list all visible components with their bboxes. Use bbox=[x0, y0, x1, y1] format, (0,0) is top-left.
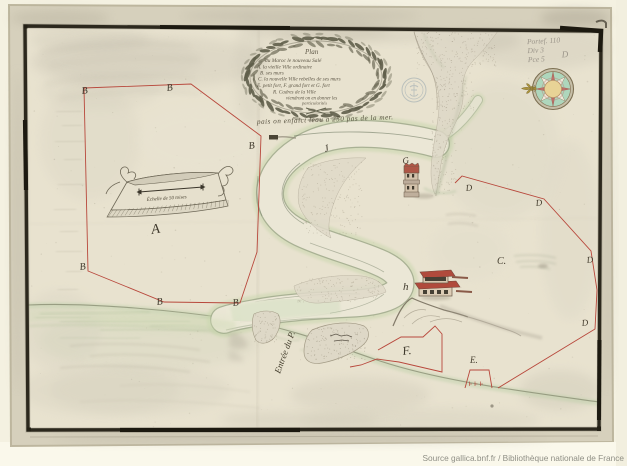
svg-text:R. Cadres de la Ville: R. Cadres de la Ville bbox=[272, 90, 316, 96]
svg-text:Plan: Plan bbox=[304, 48, 319, 56]
svg-text:E.: E. bbox=[469, 355, 478, 365]
svg-text:D: D bbox=[560, 49, 569, 59]
svg-text:h: h bbox=[403, 281, 409, 293]
svg-text:C. la nouvelle Ville rebelles: C. la nouvelle Ville rebelles de ses mur… bbox=[258, 77, 341, 83]
svg-text:Source gallica.bnf.fr / Biblio: Source gallica.bnf.fr / Bibliothèque nat… bbox=[422, 453, 624, 463]
svg-text:C.: C. bbox=[497, 256, 506, 267]
svg-text:F.: F. bbox=[400, 343, 412, 358]
svg-text:particularités: particularités bbox=[301, 101, 327, 106]
svg-text:Pce 5: Pce 5 bbox=[527, 54, 546, 64]
svg-text:du Maroc le nouveau Salé: du Maroc le nouveau Salé bbox=[265, 58, 322, 64]
svg-text:E. petit fort, F. grand fort e: E. petit fort, F. grand fort et G. fort bbox=[256, 82, 330, 89]
